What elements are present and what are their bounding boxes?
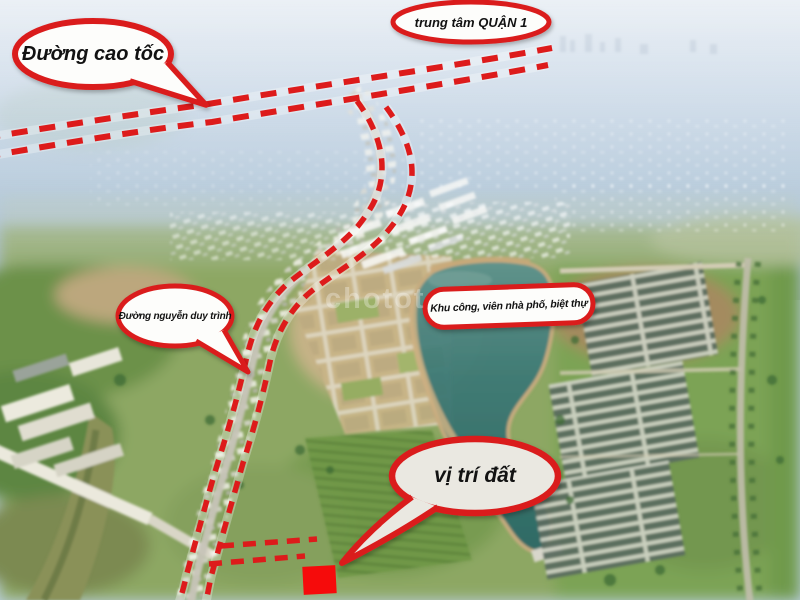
aerial-photo <box>0 0 800 600</box>
site-marker <box>302 565 336 595</box>
callout-area <box>424 284 593 328</box>
aerial-map: Đường cao tốc trung tâm QUẬN 1 Đường ngu… <box>0 0 800 600</box>
callout-district-center <box>393 2 549 42</box>
